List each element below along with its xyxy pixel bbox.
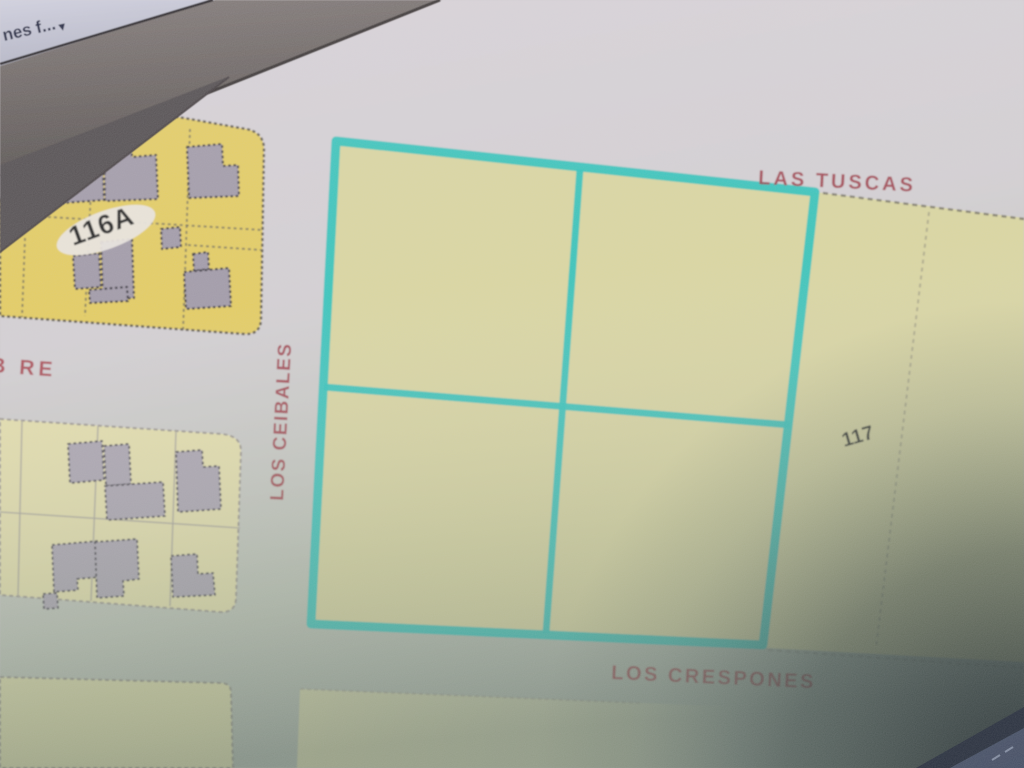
- photo-noise-overlay: [0, 0, 1024, 768]
- map-canvas[interactable]: LAS TUSCAS LOS CEIBALES LOS CRESPONES B …: [0, 0, 1024, 768]
- photographed-monitor: LAS TUSCAS LOS CEIBALES LOS CRESPONES B …: [0, 0, 1024, 768]
